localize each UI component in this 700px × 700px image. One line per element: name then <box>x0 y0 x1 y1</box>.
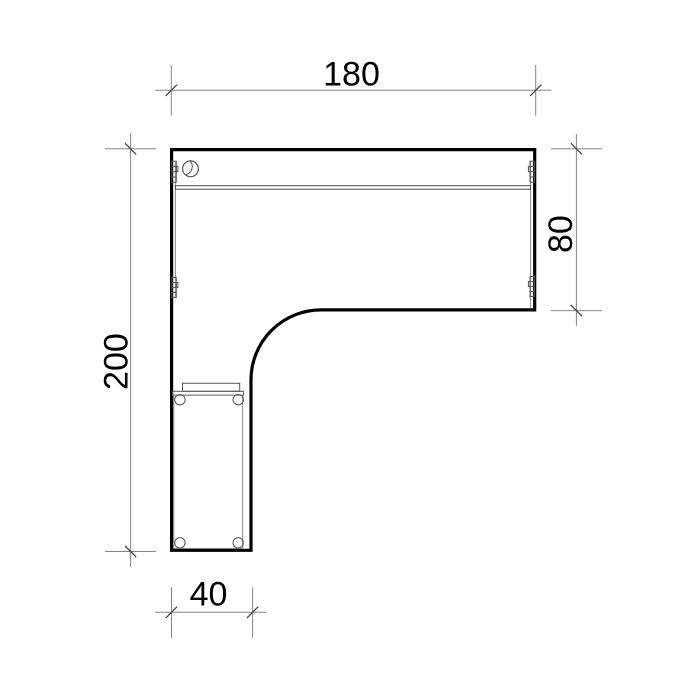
svg-text:80: 80 <box>542 215 580 253</box>
svg-text:40: 40 <box>190 576 228 614</box>
svg-text:180: 180 <box>323 55 380 93</box>
svg-text:200: 200 <box>97 333 135 390</box>
